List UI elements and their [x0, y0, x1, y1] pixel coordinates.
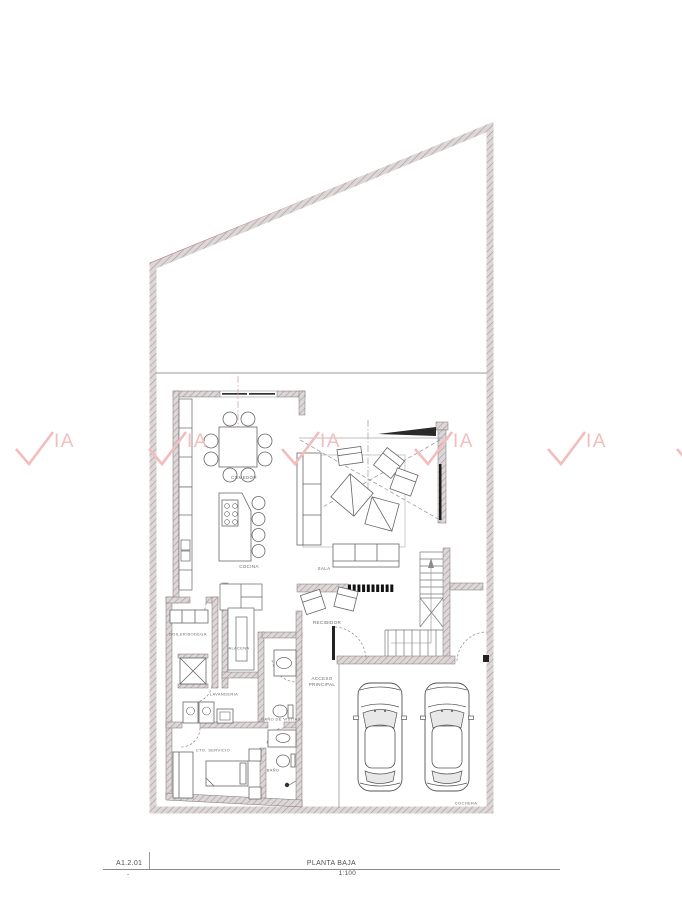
- laundry-sink: [217, 709, 233, 723]
- tv: [439, 464, 442, 520]
- pantry-shelves: [228, 608, 254, 670]
- ottoman: [365, 497, 399, 531]
- room-label-cochera: COCHERA: [455, 800, 477, 805]
- shower-head: [285, 783, 289, 787]
- living-room-furniture: [297, 427, 442, 567]
- svg-text:IA: IA: [320, 431, 341, 452]
- room-label-bodega: BOILER/BODEGA: [169, 631, 206, 636]
- guest-bath-fixtures: [273, 650, 296, 718]
- room-label-lavanderia: LAVANDERIA: [210, 691, 238, 696]
- sheet-note: -: [127, 871, 129, 878]
- bed-pillow: [240, 763, 246, 784]
- service-toilet: [277, 755, 290, 767]
- stairs: [385, 552, 443, 656]
- room-label-cto-servicio: CTO. SERVICIO: [196, 747, 230, 752]
- service-bath-fixtures: [268, 730, 296, 787]
- svg-text:IA: IA: [54, 431, 75, 452]
- guest-toilet: [273, 705, 287, 717]
- guest-vanity: [274, 650, 296, 676]
- bodega-shelf: [170, 610, 208, 623]
- room-label-comedor: COMEDOR: [231, 475, 257, 481]
- room-label-alacena: ALACENA: [228, 645, 249, 650]
- floor-plan-sheet: IA IA IA IA IA IA COMEDOR COCINA SALA RE…: [0, 0, 682, 900]
- service-room-door-arc: [181, 728, 200, 747]
- room-label-recibidor: RECIBIDOR: [313, 620, 341, 626]
- room-label-acceso-principal: ACCESO PRINCIPAL: [309, 676, 336, 688]
- dining-window: [220, 391, 277, 397]
- svg-text:IA: IA: [453, 431, 474, 452]
- watermark-mark: IA: [16, 431, 75, 464]
- service-vanity: [268, 730, 296, 747]
- dryer: [199, 702, 214, 723]
- svg-text:IA: IA: [187, 431, 208, 452]
- stair-direction-arrow: [428, 558, 434, 568]
- drawing-scale: 1:100: [280, 870, 356, 877]
- watermark-mark: IA: [548, 431, 607, 464]
- kitchen-island: [219, 493, 265, 561]
- drawing-title: PLANTA BAJA: [280, 860, 356, 867]
- car-2: [421, 683, 474, 791]
- room-label-cocina: COCINA: [239, 564, 259, 570]
- floor-plan-canvas: IA IA IA IA IA IA: [0, 0, 682, 900]
- sofa-bottom: [333, 544, 399, 567]
- boiler-box: [170, 610, 208, 684]
- room-label-bano: BAÑO: [267, 767, 280, 772]
- car-1: [354, 683, 407, 791]
- room-label-bano-visitas: BAÑO DE VISITAS: [261, 716, 300, 721]
- sofa-left: [297, 453, 321, 545]
- sheet-code: A1.2.01: [116, 860, 142, 867]
- service-bedroom: [173, 749, 261, 799]
- washer: [183, 702, 198, 723]
- laundry-appliances: [183, 702, 233, 723]
- watermark-mark: IA: [677, 431, 682, 464]
- nightstand-1: [249, 749, 261, 761]
- room-label-sala: SALA: [318, 566, 331, 572]
- laundry-door-arc: [191, 686, 212, 703]
- kitchen-sink: [181, 540, 190, 550]
- cochera: [339, 664, 474, 808]
- service-closet: [173, 752, 193, 798]
- garage-door-jamb: [483, 655, 489, 662]
- entry-door-arc: [335, 627, 366, 660]
- title-block-divider: [149, 852, 150, 869]
- entry-door-leaf: [332, 626, 335, 660]
- svg-text:IA: IA: [586, 431, 607, 452]
- nightstand-2: [249, 787, 261, 799]
- garage-door-arc: [457, 632, 487, 661]
- coffee-table: [331, 474, 373, 516]
- bar-stool: [252, 497, 265, 510]
- upper-floor-edge: [378, 427, 436, 436]
